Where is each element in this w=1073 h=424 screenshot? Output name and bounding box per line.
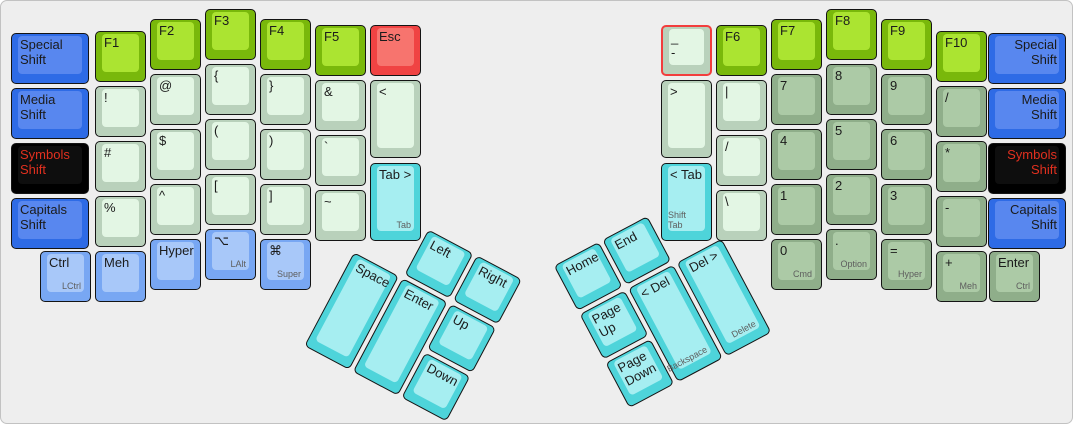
key-ampersand[interactable]: & [315,80,366,131]
keycap-top: / [943,89,980,127]
key-num-8[interactable]: 8 [826,64,877,115]
key-pipe[interactable]: | [716,80,767,131]
key-label: F9 [890,23,923,38]
keycap-top: Tab >Tab [377,166,414,231]
keycap-top: * [943,144,980,182]
keyboard-canvas: Special ShiftMedia ShiftSymbols ShiftCap… [0,0,1073,424]
keycap-top: 8 [833,67,870,105]
key-label: F8 [835,13,868,28]
key-label: 7 [780,78,813,93]
key-capitals-shift-left[interactable]: Capitals Shift [11,198,89,249]
key-label: { [214,68,247,83]
key-num-minus[interactable]: - [936,196,987,247]
key-num-6[interactable]: 6 [881,129,932,180]
key-label: % [104,200,137,215]
key-f9[interactable]: F9 [881,19,932,70]
key-label: * [945,145,978,160]
key-right-brace[interactable]: } [260,74,311,125]
key-minus-underscore[interactable]: _ - [661,25,712,76]
key-super[interactable]: ⌘Super [260,239,311,290]
keycap-top: } [267,77,304,115]
key-dollar[interactable]: $ [150,129,201,180]
keycap-top: 2 [833,177,870,215]
key-caret[interactable]: ^ [150,184,201,235]
keycap-top: 5 [833,122,870,160]
key-capitals-shift-right[interactable]: Capitals Shift [988,198,1066,249]
key-label: > [670,84,703,99]
key-sublabel: Delete [730,319,758,340]
key-label: 2 [835,178,868,193]
keycap-top: F10 [943,34,980,72]
key-sublabel: Hyper [898,269,922,279]
keycap-top: | [723,83,760,121]
keycap-top: Esc [377,28,414,66]
key-label: 4 [780,133,813,148]
keycap-top: & [322,83,359,121]
key-num-4[interactable]: 4 [771,129,822,180]
key-media-shift-right[interactable]: Media Shift [988,88,1066,139]
key-label: End [612,224,648,253]
keycap-top: ! [102,89,139,127]
keycap-top: Capitals Shift [995,201,1059,239]
key-label: / [725,139,758,154]
key-sublabel: Shift Tab [668,210,702,230]
keycap-top: F3 [212,12,249,50]
keycap-top: - [943,199,980,237]
key-hyper-left[interactable]: Hyper [150,239,201,290]
key-backslash[interactable]: \ [716,190,767,241]
key-num-equals[interactable]: =Hyper [881,239,932,290]
key-label: Right [476,263,512,292]
key-label: @ [159,78,192,93]
keycap-top: Symbols Shift [18,146,82,184]
key-label: ` [324,139,357,154]
key-label: ) [269,133,302,148]
key-label: Page Down [615,347,658,389]
key-label: Page Up [589,298,632,340]
keycap-top: Page Down [613,345,664,396]
key-label: & [324,84,357,99]
key-label: 5 [835,123,868,138]
keycap-top: ( [212,122,249,160]
key-label: + [945,255,978,270]
key-label: Del > [686,247,722,276]
keycap-top: 4 [778,132,815,170]
key-left-brace[interactable]: { [205,64,256,115]
key-meh-left[interactable]: Meh [95,251,146,302]
key-tab[interactable]: Tab >Tab [370,163,421,241]
key-label: 0 [780,243,813,258]
keycap-top: 0Cmd [778,242,815,280]
key-num-plus[interactable]: +Meh [936,251,987,302]
key-f5[interactable]: F5 [315,25,366,76]
key-label: F3 [214,13,247,28]
key-num-slash[interactable]: / [936,86,987,137]
key-label: Capitals Shift [20,202,80,232]
keycap-top: Symbols Shift [995,146,1059,184]
key-label: _ - [671,30,702,60]
key-label: Meh [104,255,137,270]
key-greater-than[interactable]: > [661,80,712,158]
key-num-5[interactable]: 5 [826,119,877,170]
keycap-top: Special Shift [995,36,1059,74]
key-label: Space [353,260,389,289]
key-sublabel: Ctrl [1016,281,1030,291]
key-exclamation[interactable]: ! [95,86,146,137]
key-sublabel: Backspace [665,344,709,374]
keycap-top: F4 [267,22,304,60]
key-label: F1 [104,35,137,50]
key-label: ⌘ [269,243,302,258]
key-label: | [725,84,758,99]
key-special-shift-right[interactable]: Special Shift [988,33,1066,84]
key-num-9[interactable]: 9 [881,74,932,125]
keycap-top: Media Shift [995,91,1059,129]
keycap-top: End [610,222,661,273]
keycap-top: F1 [102,34,139,72]
key-num-0[interactable]: 0Cmd [771,239,822,290]
key-sublabel: Meh [959,281,977,291]
keycap-top: F6 [723,28,760,66]
key-label: F2 [159,23,192,38]
keycap-top: ] [267,187,304,225]
key-label: . [835,233,868,248]
key-label: ( [214,123,247,138]
key-label: \ [725,194,758,209]
keycap-top: Hyper [157,242,194,280]
keycap-top: ⌘Super [267,242,304,280]
key-label: ~ [324,194,357,209]
keycap-top: 9 [888,77,925,115]
keycap-top: Down [412,358,463,409]
keycap-top: ⌥LAlt [212,232,249,270]
key-num-7[interactable]: 7 [771,74,822,125]
key-label: Esc [379,29,412,44]
key-num-1[interactable]: 1 [771,184,822,235]
keycap-top: $ [157,132,194,170]
key-label: Ctrl [49,255,82,270]
keycap-top: EnterCtrl [996,254,1033,292]
key-f2[interactable]: F2 [150,19,201,70]
key-label: / [945,90,978,105]
key-label: ⌥ [214,233,247,248]
key-label: Down [424,360,460,389]
key-hash[interactable]: # [95,141,146,192]
keycap-top: .Option [833,232,870,270]
keycap-top: Special Shift [18,36,82,74]
keycap-top: [ [212,177,249,215]
key-f6[interactable]: F6 [716,25,767,76]
key-label: Media Shift [997,92,1057,122]
key-special-shift-left[interactable]: Special Shift [11,33,89,84]
key-label: 1 [780,188,813,203]
key-label: ^ [159,188,192,203]
keycap-top: ) [267,132,304,170]
key-at[interactable]: @ [150,74,201,125]
key-label: } [269,78,302,93]
key-label: 6 [890,133,923,148]
keycap-top: Left [415,235,466,286]
keycap-top: F2 [157,22,194,60]
key-f3[interactable]: F3 [205,9,256,60]
key-label: F6 [725,29,758,44]
keycap-top: CtrlLCtrl [47,254,84,292]
key-esc[interactable]: Esc [370,25,421,76]
key-label: $ [159,133,192,148]
keycap-top: Meh [102,254,139,292]
key-label: Enter [998,255,1031,270]
key-enter-right[interactable]: EnterCtrl [989,251,1040,302]
keycap-top: =Hyper [888,242,925,280]
keycap-top: F9 [888,22,925,60]
key-num-period[interactable]: .Option [826,229,877,280]
key-label: < [379,84,412,99]
key-sublabel: Tab [396,220,411,230]
key-num-3[interactable]: 3 [881,184,932,235]
key-label: 9 [890,78,923,93]
key-label: Media Shift [20,92,80,122]
keycap-top: \ [723,193,760,231]
key-sublabel: Super [277,269,301,279]
keycap-top: F5 [322,28,359,66]
key-label: Enter [402,286,438,315]
key-sublabel: LCtrl [62,281,81,291]
keycap-top: / [723,138,760,176]
keycap-top: 1 [778,187,815,225]
key-label: Hyper [159,243,192,258]
keycap-top: ^ [157,187,194,225]
key-sublabel: Cmd [793,269,812,279]
key-f8[interactable]: F8 [826,9,877,60]
key-label: Symbols Shift [997,147,1057,177]
keycap-top: < [377,83,414,148]
key-f10[interactable]: F10 [936,31,987,82]
key-f4[interactable]: F4 [260,19,311,70]
key-label: < Del [638,272,674,301]
key-media-shift-left[interactable]: Media Shift [11,88,89,139]
keycap-top: Media Shift [18,91,82,129]
key-label: 8 [835,68,868,83]
key-sublabel: LAlt [230,259,246,269]
key-label: - [945,200,978,215]
key-label: 3 [890,188,923,203]
keycap-top: Home [561,248,612,299]
key-tilde[interactable]: ~ [315,190,366,241]
key-label: F7 [780,23,813,38]
key-label: Tab > [379,167,412,182]
keycap-top: Right [464,261,515,312]
key-f1[interactable]: F1 [95,31,146,82]
keycap-top: Up [438,310,489,361]
key-right-bracket[interactable]: ] [260,184,311,235]
key-symbols-shift-right[interactable]: Symbols Shift [988,143,1066,194]
keycap-top: Capitals Shift [18,201,82,239]
key-num-2[interactable]: 2 [826,174,877,225]
keycap-top: F8 [833,12,870,50]
key-percent[interactable]: % [95,196,146,247]
key-label: Left [427,237,463,266]
key-label: [ [214,178,247,193]
key-label: # [104,145,137,160]
key-label: Special Shift [20,37,80,67]
keycap-top: 3 [888,187,925,225]
key-shift-tab[interactable]: < TabShift Tab [661,163,712,241]
key-left-bracket[interactable]: [ [205,174,256,225]
key-label: Special Shift [997,37,1057,67]
key-label: Symbols Shift [20,147,80,177]
key-label: = [890,243,923,258]
key-symbols-shift-left[interactable]: Symbols Shift [11,143,89,194]
key-ctrl-left[interactable]: CtrlLCtrl [40,251,91,302]
key-sublabel: Option [840,259,867,269]
keycap-top: ~ [322,193,359,231]
keycap-top: # [102,144,139,182]
keycap-top: Page Up [587,296,638,347]
key-label: Up [450,312,486,341]
key-lalt[interactable]: ⌥LAlt [205,229,256,280]
keycap-top: { [212,67,249,105]
key-label: ! [104,90,137,105]
key-label: F4 [269,23,302,38]
key-left-paren[interactable]: ( [205,119,256,170]
keycap-top: ` [322,138,359,176]
keycap-top: @ [157,77,194,115]
key-right-paren[interactable]: ) [260,129,311,180]
keycap-top: 7 [778,77,815,115]
key-label: Home [564,250,600,279]
keycap-top: > [668,83,705,148]
key-backtick[interactable]: ` [315,135,366,186]
key-num-asterisk[interactable]: * [936,141,987,192]
keycap-top: % [102,199,139,237]
key-label: F5 [324,29,357,44]
key-slash[interactable]: / [716,135,767,186]
keycap-top: _ - [669,29,704,65]
keycap-top: +Meh [943,254,980,292]
key-less-than[interactable]: < [370,80,421,158]
key-label: Capitals Shift [997,202,1057,232]
key-label: < Tab [670,167,703,182]
keycap-top: F7 [778,22,815,60]
key-label: F10 [945,35,978,50]
key-label: ] [269,188,302,203]
keycap-top: 6 [888,132,925,170]
key-f7[interactable]: F7 [771,19,822,70]
keycap-top: < TabShift Tab [668,166,705,231]
